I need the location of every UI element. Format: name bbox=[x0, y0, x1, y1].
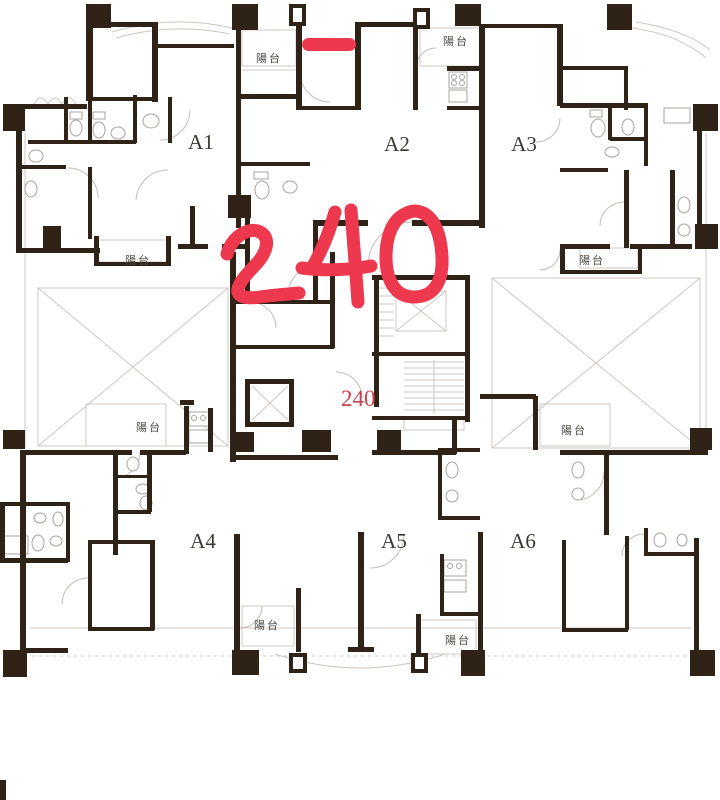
column-block bbox=[690, 650, 715, 676]
column-block bbox=[43, 226, 61, 248]
column-block bbox=[228, 195, 251, 218]
balcony-labels: 陽台 陽台 陽台 陽台 陽台 陽台 陽台 陽台 bbox=[125, 34, 605, 647]
hollow-column bbox=[415, 10, 428, 27]
column-block bbox=[607, 4, 632, 30]
column-block bbox=[3, 430, 25, 449]
column-block bbox=[377, 430, 401, 450]
unit-label-a4: A4 bbox=[190, 529, 216, 553]
handwritten-digit-2 bbox=[227, 230, 299, 297]
balcony-label-a5-bottom: 陽台 bbox=[445, 633, 471, 647]
stove-symbol bbox=[449, 72, 467, 88]
unit-label-a5: A5 bbox=[381, 529, 407, 553]
column-block bbox=[86, 4, 111, 28]
red-marker-dash bbox=[302, 38, 356, 51]
balcony-label-a1-bottom: 陽台 bbox=[125, 253, 151, 267]
floor-plan-image: A1 A2 A3 A4 A5 A6 陽台 陽台 陽台 陽台 陽台 陽台 陽台 陽… bbox=[0, 0, 720, 800]
hollow-column bbox=[413, 655, 426, 671]
wardrobe-symbol bbox=[34, 98, 76, 104]
balcony-label-a6-upper: 陽台 bbox=[561, 423, 587, 437]
floor-plan-canvas: A1 A2 A3 A4 A5 A6 陽台 陽台 陽台 陽台 陽台 陽台 陽台 陽… bbox=[0, 0, 720, 800]
edge-artifact bbox=[0, 780, 6, 800]
column-block bbox=[695, 224, 718, 249]
column-block bbox=[232, 4, 258, 30]
column-block bbox=[3, 650, 27, 677]
balcony-label-a2-top-left: 陽台 bbox=[256, 51, 282, 65]
column-block bbox=[461, 650, 485, 676]
hollow-column bbox=[291, 655, 305, 671]
unit-label-a2: A2 bbox=[384, 132, 410, 156]
balcony-label-a3-bottom: 陽台 bbox=[579, 253, 605, 267]
unit-label-a6: A6 bbox=[510, 529, 536, 553]
plumbing-fixtures bbox=[4, 72, 690, 592]
printed-240-label: 240 bbox=[341, 386, 376, 411]
column-block bbox=[455, 4, 481, 26]
column-block bbox=[302, 430, 331, 452]
elevator-shaft-left bbox=[252, 386, 288, 420]
unit-label-a1: A1 bbox=[188, 130, 214, 154]
balcony-label-a4-bottom: 陽台 bbox=[254, 618, 280, 632]
column-block bbox=[690, 428, 712, 450]
hollow-column bbox=[291, 6, 304, 24]
balcony-label-a2-top-right: 陽台 bbox=[443, 34, 469, 48]
column-block bbox=[3, 104, 25, 131]
column-block bbox=[232, 650, 259, 675]
light-guide-lines bbox=[25, 22, 710, 668]
column-block bbox=[693, 104, 718, 131]
unit-label-a3: A3 bbox=[511, 132, 537, 156]
balcony-label-a4-upper: 陽台 bbox=[136, 420, 162, 434]
column-block bbox=[230, 432, 254, 452]
